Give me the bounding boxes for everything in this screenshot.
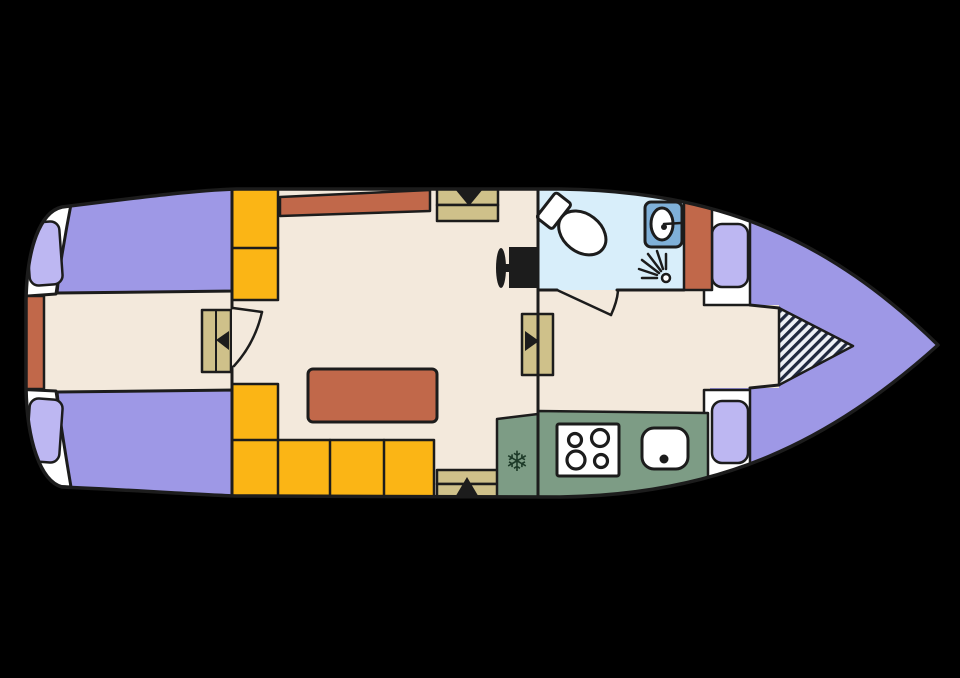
freezer-snowflake-icon: ❄: [505, 445, 528, 478]
aft-berth-bottom: [57, 390, 236, 499]
companionway-steps-down: [437, 470, 498, 499]
galley-sink-icon: [642, 428, 688, 469]
aft-berth-top: [57, 186, 236, 293]
helm-seat: [496, 247, 538, 288]
bow-walkway: [690, 305, 779, 388]
companionway-steps-up: [437, 188, 498, 221]
bow-cushion-top: [712, 224, 748, 287]
floor-plan-canvas: ❄: [0, 0, 960, 678]
washbasin-icon: [645, 202, 682, 247]
corridor-floor: [538, 288, 710, 412]
dinette-table: [308, 369, 437, 422]
bow-cushion-bottom: [712, 401, 748, 463]
aft-cabin-steps: [202, 310, 231, 372]
salon-cabinets: [232, 188, 278, 300]
interior: ❄: [12, 180, 960, 510]
stove-icon: [557, 424, 619, 476]
stern-platform: [12, 296, 44, 389]
boat-floor-plan: ❄: [0, 0, 960, 678]
